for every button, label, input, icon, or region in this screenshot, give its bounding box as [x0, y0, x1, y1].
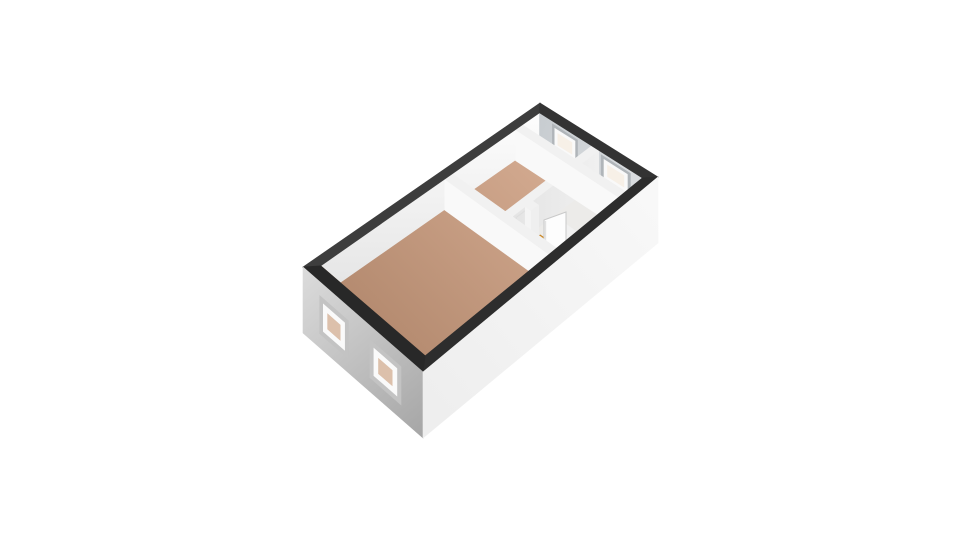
floorplan-canvas: 3D floor plan view: [0, 0, 960, 540]
floorplan-3d-view[interactable]: [0, 0, 960, 540]
